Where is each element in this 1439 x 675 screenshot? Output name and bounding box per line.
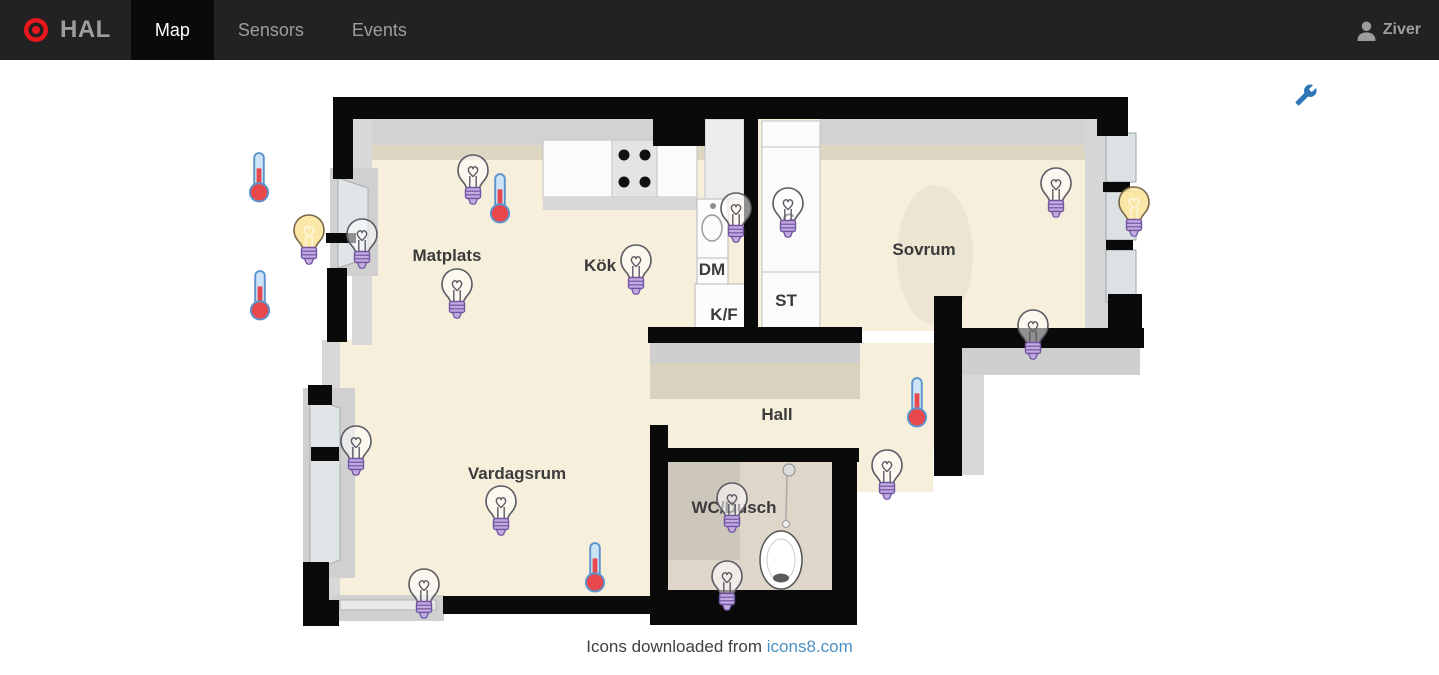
bulb-off-icon[interactable] xyxy=(770,186,806,242)
bulb-off-icon[interactable] xyxy=(869,448,905,504)
attribution-text: Icons downloaded from xyxy=(586,637,762,656)
tab-events[interactable]: Events xyxy=(328,0,431,60)
thermometer-icon[interactable] xyxy=(489,172,512,224)
bulb-on-icon[interactable] xyxy=(291,213,327,269)
appliance-label-dm: DM xyxy=(699,260,725,280)
bulb-off-icon[interactable] xyxy=(455,153,491,209)
settings-wrench-button[interactable] xyxy=(1295,84,1318,107)
bulb-off-icon[interactable] xyxy=(618,243,654,299)
nav-tabs: MapSensorsEvents xyxy=(131,0,431,60)
brand-name: HAL xyxy=(60,16,111,44)
bulb-off-icon[interactable] xyxy=(344,217,380,273)
thermometer-icon[interactable] xyxy=(906,376,929,428)
bulb-off-icon[interactable] xyxy=(406,567,442,623)
appliance-label-st: ST xyxy=(775,291,797,311)
bulb-off-icon[interactable] xyxy=(439,267,475,323)
bulb-off-icon[interactable] xyxy=(483,484,519,540)
room-label-matplats: Matplats xyxy=(413,246,482,266)
user-icon xyxy=(1357,20,1376,41)
thermometer-icon[interactable] xyxy=(249,269,272,321)
bulb-off-icon[interactable] xyxy=(338,424,374,480)
bulb-off-icon[interactable] xyxy=(709,559,745,615)
thermometer-icon[interactable] xyxy=(248,151,271,203)
appliance-label-k-f: K/F xyxy=(710,305,737,325)
navbar-spacer xyxy=(431,0,1357,60)
room-label-k-k: Kök xyxy=(584,256,616,276)
bulb-on-icon[interactable] xyxy=(1116,185,1152,241)
navbar: HAL MapSensorsEvents Ziver xyxy=(0,0,1439,60)
tab-sensors[interactable]: Sensors xyxy=(214,0,328,60)
icons8-link[interactable]: icons8.com xyxy=(767,637,853,656)
room-label-sovrum: Sovrum xyxy=(892,240,955,260)
wrench-icon xyxy=(1295,84,1318,107)
room-label-hall: Hall xyxy=(761,405,792,425)
map-area: MatplatsKökSovrumHallVardagsrumWC/DuschD… xyxy=(0,0,1439,675)
room-label-vardagsrum: Vardagsrum xyxy=(468,464,566,484)
bulb-off-icon[interactable] xyxy=(1038,166,1074,222)
bulb-off-icon[interactable] xyxy=(718,191,754,247)
user-name: Ziver xyxy=(1383,21,1421,39)
bulb-off-icon[interactable] xyxy=(714,481,750,537)
brand[interactable]: HAL xyxy=(0,0,131,60)
bulb-off-icon[interactable] xyxy=(1015,308,1051,364)
thermometer-icon[interactable] xyxy=(584,541,607,593)
attribution-footer: Icons downloaded from icons8.com xyxy=(0,637,1439,657)
target-logo-icon xyxy=(21,15,51,45)
user-menu[interactable]: Ziver xyxy=(1357,0,1439,60)
tab-map[interactable]: Map xyxy=(131,0,214,60)
